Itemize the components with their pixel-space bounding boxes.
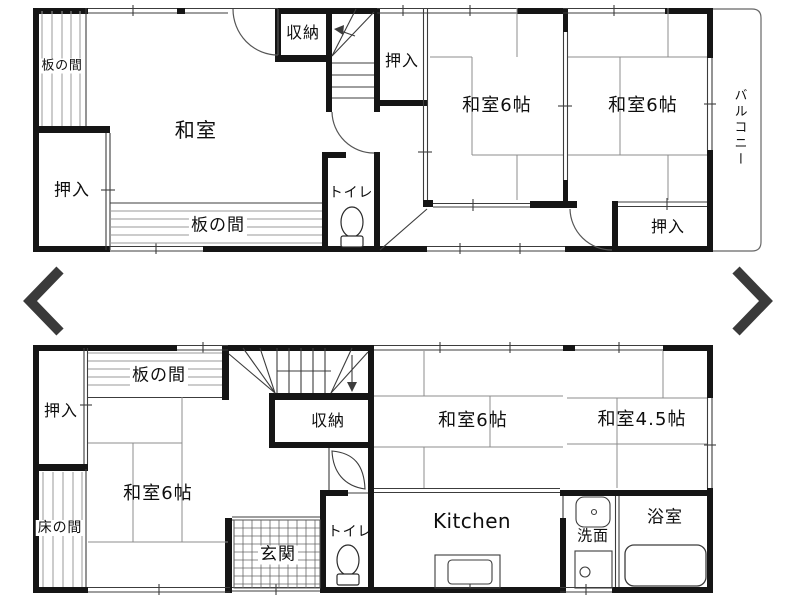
kitchen-counter-icon — [435, 555, 500, 588]
room-label-washitsu6-left-1f: 和室6帖 — [123, 485, 193, 503]
room-label-itanoma-left-2f: 板の間 — [39, 59, 84, 74]
room-label-genkan-1f: 玄関 — [258, 546, 298, 565]
walls-upper — [33, 8, 713, 252]
floorplan-image-viewer: 板の間 押入 和室 板の間 収納 押入 トイレ 和室6帖 和室6帖 押入 バルコ… — [0, 0, 800, 601]
closet-door-leaf — [332, 451, 365, 489]
washbasin-icon — [576, 497, 610, 527]
room-label-oshiire-top-2f: 押入 — [385, 53, 419, 69]
room-label-senmen-1f: 洗面 — [575, 528, 611, 545]
stairs-upper-icon — [332, 9, 374, 98]
room-label-itanoma-bottom-2f: 板の間 — [189, 217, 247, 236]
next-image-button[interactable] — [730, 264, 778, 338]
prev-image-button[interactable] — [18, 264, 66, 338]
room-label-washitsu45-1f: 和室4.5帖 — [597, 411, 686, 429]
toilet-icon-lower — [337, 545, 359, 585]
room-label-bathroom-1f: 浴室 — [647, 510, 683, 527]
room-label-oshiire-right-2f: 押入 — [651, 219, 685, 235]
room-label-washitsu6-mid-1f: 和室6帖 — [438, 412, 508, 430]
room-label-shuno-1f: 収納 — [311, 413, 345, 429]
bathtub-icon — [625, 545, 706, 586]
toilet-icon-upper — [341, 207, 363, 247]
door-arcs-upper — [233, 9, 612, 250]
room-label-oshiire-left-2f: 押入 — [54, 183, 90, 200]
room-label-oshiire-1f: 押入 — [44, 403, 78, 419]
stairs-lower-icon — [229, 348, 368, 393]
chevron-right-icon — [730, 264, 778, 338]
room-label-itanoma-1f: 板の間 — [130, 367, 188, 386]
washing-machine-icon — [575, 551, 612, 588]
room-label-toilet-1f: トイレ — [328, 525, 373, 539]
room-label-washitsu6-right-2f: 和室6帖 — [608, 97, 678, 115]
room-label-shuno-2f: 収納 — [286, 25, 320, 41]
room-label-balcony-2f: バルコニー — [733, 88, 746, 168]
room-label-toilet-2f: トイレ — [329, 186, 374, 200]
room-label-washitsu-2f: 和室 — [175, 120, 217, 140]
room-label-kitchen-1f: Kitchen — [433, 511, 511, 531]
room-label-washitsu6-left-2f: 和室6帖 — [462, 97, 532, 115]
chevron-left-icon — [18, 264, 66, 338]
room-label-tokonoma-1f: 床の間 — [36, 520, 85, 536]
